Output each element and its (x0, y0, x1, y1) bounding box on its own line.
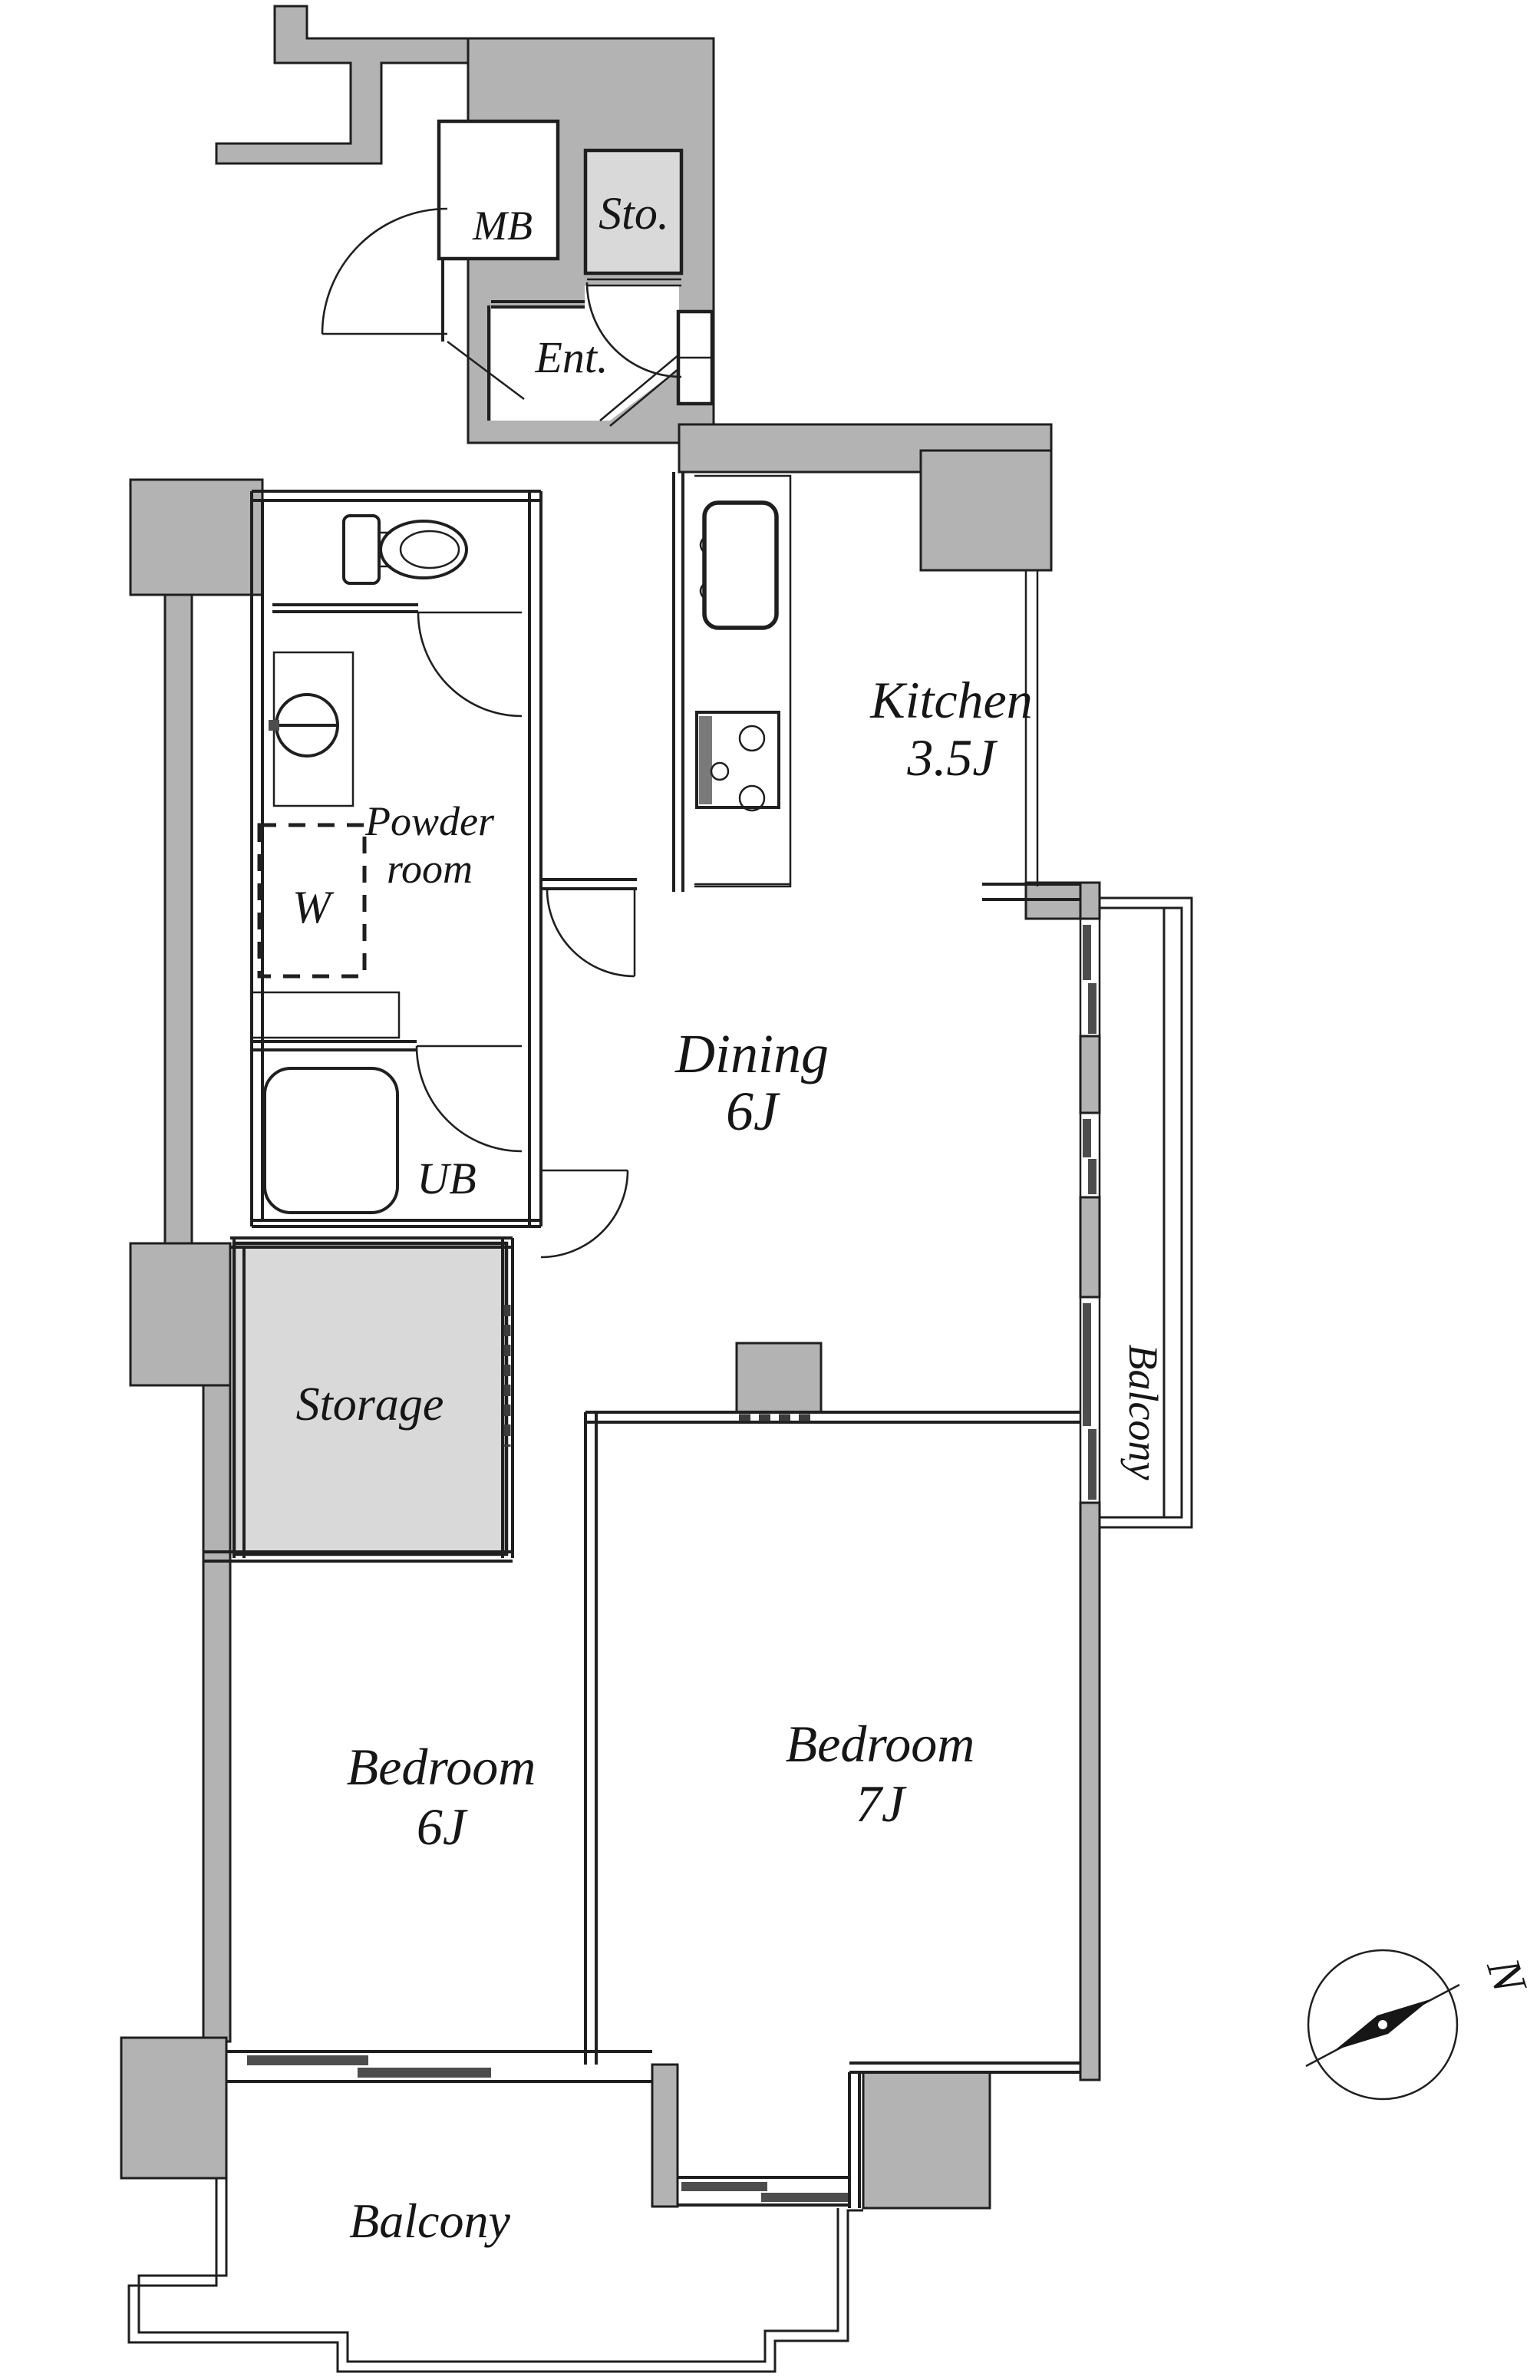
bathtub-icon (265, 1068, 397, 1213)
pillar-left-bottom (121, 2038, 226, 2178)
wall-bedroom7-step (652, 2065, 678, 2207)
label-kitchen: Kitchen (869, 671, 1033, 729)
wall-right-2 (1080, 1036, 1100, 1113)
hall-dining-door (547, 889, 635, 976)
wall-top-left-zigzag (216, 6, 468, 163)
wall-right-1 (1080, 883, 1100, 919)
label-ub: UB (417, 1154, 476, 1203)
label-dining-size: 6J (726, 1081, 780, 1142)
label-washer: W (292, 882, 335, 933)
toilet-icon (344, 516, 467, 583)
label-ent: Ent. (534, 332, 608, 382)
window-bar (1088, 1429, 1096, 1500)
window-bar (1083, 1119, 1091, 1157)
pillar-dining-bedroom7 (737, 1343, 821, 1412)
floor-plan-drawing: MB Sto. Ent. Kitchen 3.5J Powder room W … (0, 0, 1540, 2380)
label-balcony-right: Balcony (1120, 1345, 1166, 1480)
vanity-counter (252, 992, 399, 1038)
window-bar (681, 2182, 767, 2191)
corridor-door (541, 1170, 628, 1257)
stove-icon (697, 712, 779, 810)
pillar-left-top (130, 480, 262, 595)
label-powder-1: Powder (364, 798, 495, 844)
window-bar (1083, 1303, 1091, 1426)
wall-kitchen-corner (921, 451, 1051, 570)
ub-door (417, 1046, 522, 1151)
window-bar (761, 2193, 848, 2202)
compass-hub (1378, 2020, 1387, 2029)
window-bar (1088, 1159, 1096, 1194)
wall-left-strip-2 (203, 1385, 230, 2042)
window-bar (247, 2055, 368, 2065)
label-sto: Sto. (599, 188, 669, 239)
compass: N (1306, 1950, 1537, 2099)
label-bedroom6-size: 6J (417, 1797, 468, 1856)
window-bar (358, 2068, 491, 2078)
wall-right-4 (1080, 1503, 1100, 2080)
label-kitchen-size: 3.5J (906, 728, 998, 787)
floor-plan: MB Sto. Ent. Kitchen 3.5J Powder room W … (0, 0, 1540, 2380)
pillar-bottom-right (863, 2072, 990, 2208)
label-bedroom6: Bedroom (347, 1738, 536, 1796)
label-balcony-bottom: Balcony (349, 2193, 510, 2248)
kitchen-sink-icon (701, 503, 777, 628)
label-bedroom7-size: 7J (856, 1774, 907, 1833)
pillar-left-middle (130, 1243, 230, 1385)
basin-icon (269, 652, 353, 806)
label-dining: Dining (674, 1023, 829, 1084)
compass-north-label: N (1476, 1952, 1537, 2002)
label-storage: Storage (296, 1378, 444, 1431)
label-bedroom7: Bedroom (786, 1715, 975, 1773)
wc-door (418, 612, 522, 716)
label-mb: MB (472, 203, 533, 249)
fixtures (252, 476, 790, 1213)
label-powder-2: room (387, 846, 473, 892)
wall-right-3 (1080, 1197, 1100, 1297)
window-bar (1088, 983, 1096, 1034)
wall-left-strip-1 (165, 595, 192, 1243)
window-bar (1083, 925, 1091, 980)
entrance-door (322, 209, 447, 334)
